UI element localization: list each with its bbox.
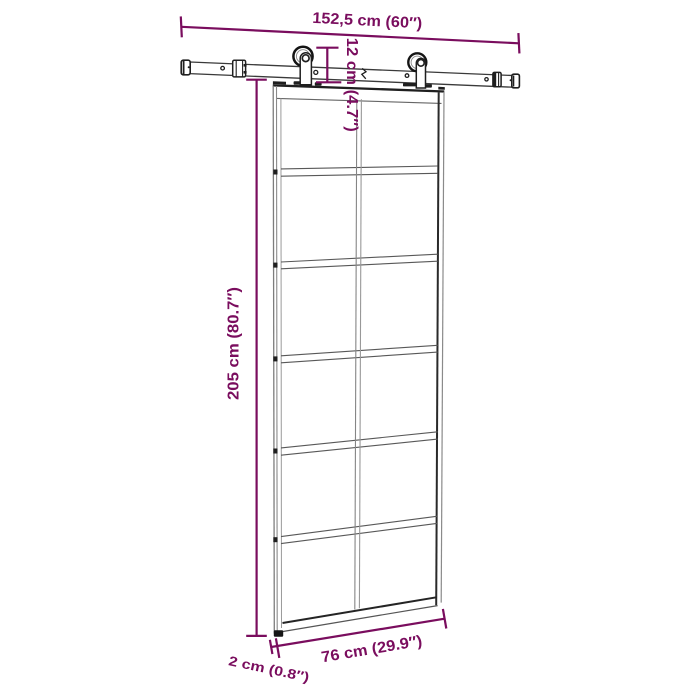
svg-text:205 cm (80.7″): 205 cm (80.7″) <box>226 287 243 400</box>
svg-text:12 cm (4.7″): 12 cm (4.7″) <box>343 38 360 132</box>
